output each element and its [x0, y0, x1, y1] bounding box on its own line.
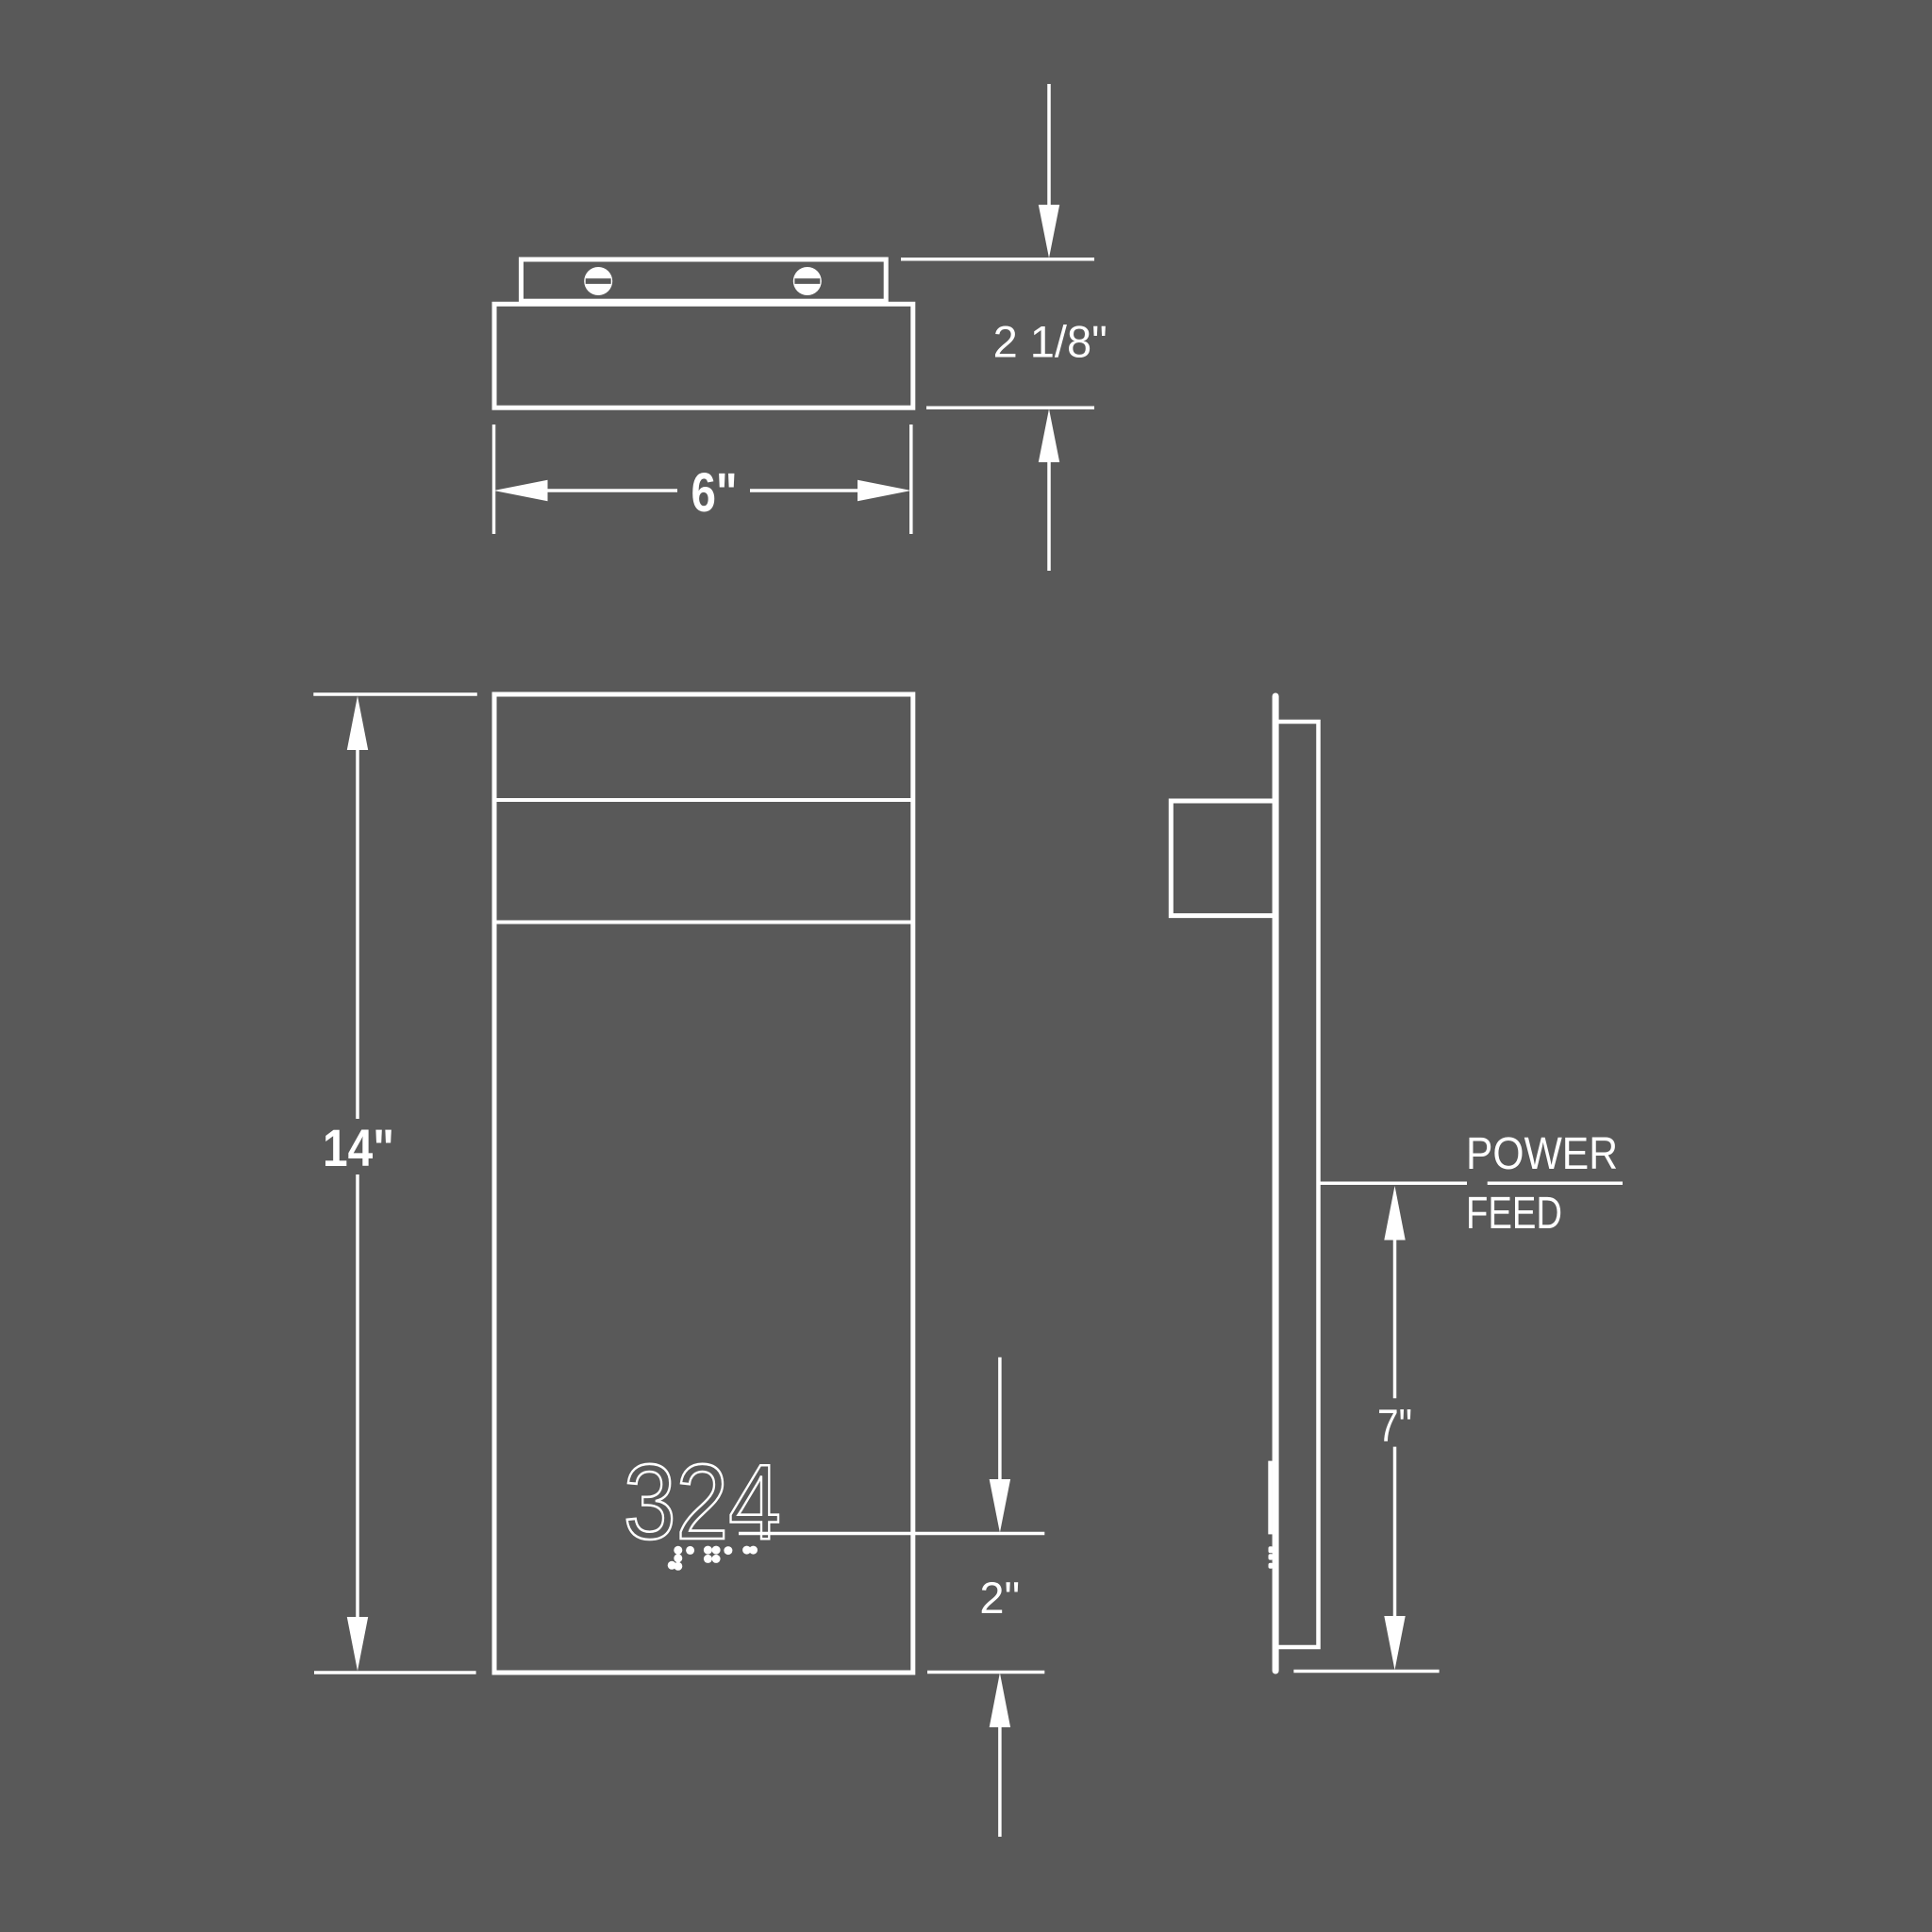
- svg-text:2": 2": [979, 1573, 1020, 1623]
- svg-text:7": 7": [1377, 1402, 1412, 1452]
- svg-text:6": 6": [691, 462, 738, 524]
- svg-text:14": 14": [323, 1118, 394, 1177]
- svg-text:POWER: POWER: [1466, 1129, 1618, 1179]
- svg-text:324: 324: [624, 1442, 781, 1561]
- svg-text:FEED: FEED: [1466, 1189, 1562, 1239]
- svg-text:2 1/8": 2 1/8": [993, 317, 1108, 367]
